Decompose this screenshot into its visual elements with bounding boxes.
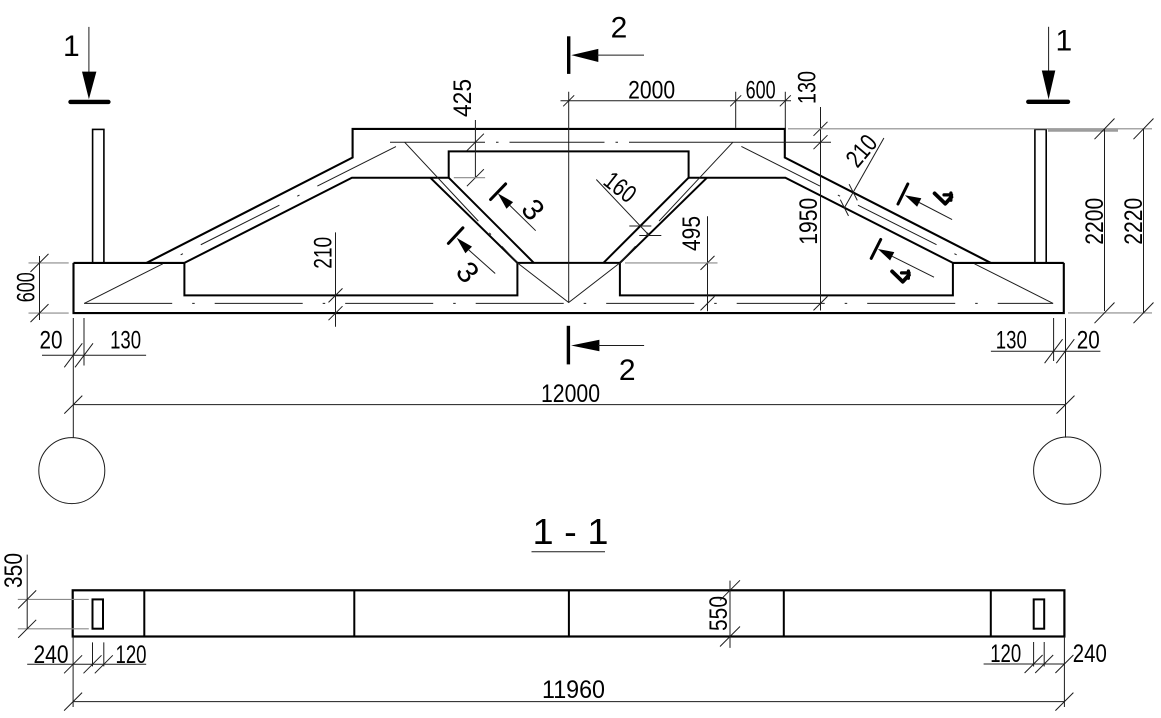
svg-text:120: 120 <box>116 641 147 669</box>
svg-text:1: 1 <box>1056 24 1073 57</box>
svg-text:11960: 11960 <box>542 676 605 704</box>
svg-text:600: 600 <box>12 272 40 302</box>
svg-text:130: 130 <box>110 326 141 354</box>
svg-text:130: 130 <box>996 326 1027 354</box>
svg-text:20: 20 <box>1077 326 1100 354</box>
svg-text:1 - 1: 1 - 1 <box>533 511 609 552</box>
svg-text:2220: 2220 <box>1120 198 1148 245</box>
svg-text:2: 2 <box>611 11 628 44</box>
svg-text:12000: 12000 <box>541 380 600 408</box>
svg-text:210: 210 <box>310 237 338 269</box>
svg-text:350: 350 <box>0 553 28 588</box>
svg-text:1: 1 <box>63 30 80 63</box>
svg-text:240: 240 <box>34 641 69 669</box>
svg-text:240: 240 <box>1073 640 1107 668</box>
svg-text:130: 130 <box>794 71 822 104</box>
svg-text:600: 600 <box>746 76 776 104</box>
svg-text:495: 495 <box>678 216 706 251</box>
svg-text:2200: 2200 <box>1081 198 1109 245</box>
svg-text:1950: 1950 <box>795 198 823 245</box>
svg-text:20: 20 <box>40 326 63 354</box>
svg-text:425: 425 <box>449 79 477 117</box>
svg-text:550: 550 <box>705 596 733 631</box>
svg-text:120: 120 <box>990 640 1021 668</box>
svg-text:2: 2 <box>619 354 636 387</box>
svg-text:2000: 2000 <box>628 76 675 104</box>
